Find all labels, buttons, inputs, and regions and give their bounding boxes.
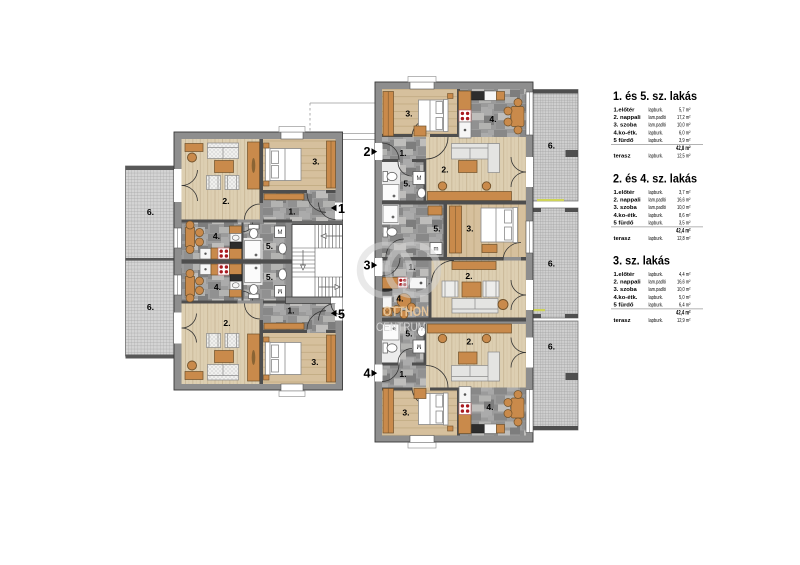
svg-text:5.: 5. [433, 224, 440, 234]
svg-text:4.: 4. [486, 402, 493, 412]
svg-text:12,5 m²: 12,5 m² [677, 154, 691, 160]
svg-text:terasz: terasz [614, 236, 631, 242]
svg-text:4.ko-étk.: 4.ko-étk. [614, 295, 638, 301]
svg-text:2. nappali: 2. nappali [614, 280, 642, 286]
svg-text:3,7 m²: 3,7 m² [679, 190, 691, 196]
svg-text:5 fürdő: 5 fürdő [614, 220, 634, 226]
svg-text:3.: 3. [312, 157, 319, 167]
svg-text:lapburk.: lapburk. [649, 302, 664, 308]
svg-text:12,8 m²: 12,8 m² [677, 236, 691, 242]
svg-text:3.: 3. [402, 408, 409, 418]
svg-text:12,9 m²: 12,9 m² [677, 318, 691, 324]
svg-text:42,4 m²: 42,4 m² [676, 227, 691, 234]
svg-text:5: 5 [338, 307, 345, 321]
svg-text:16,6 m²: 16,6 m² [677, 198, 691, 204]
svg-text:lapburk.: lapburk. [649, 220, 664, 226]
svg-text:2. nappali: 2. nappali [614, 198, 642, 204]
svg-text:CENTRUM: CENTRUM [376, 322, 426, 334]
svg-text:3.: 3. [405, 109, 412, 119]
svg-text:4,4 m²: 4,4 m² [679, 272, 691, 278]
svg-text:lam.padló: lam.padló [649, 198, 667, 204]
svg-text:2: 2 [364, 145, 371, 159]
svg-text:4.: 4. [489, 114, 496, 124]
svg-text:6.: 6. [147, 207, 154, 217]
svg-text:lapburk.: lapburk. [649, 272, 664, 278]
svg-text:5.: 5. [403, 179, 410, 189]
svg-text:42,8 m²: 42,8 m² [676, 145, 691, 152]
svg-text:2.: 2. [223, 318, 230, 328]
svg-text:lapburk.: lapburk. [649, 295, 664, 301]
svg-text:lam.padló: lam.padló [649, 115, 667, 121]
svg-text:6.: 6. [548, 141, 555, 151]
svg-text:1.: 1. [399, 369, 406, 379]
svg-text:lam.padló: lam.padló [649, 123, 667, 129]
svg-text:4.ko-étk.: 4.ko-étk. [614, 130, 638, 136]
svg-text:10,0 m²: 10,0 m² [677, 205, 691, 211]
svg-text:1.: 1. [399, 148, 406, 158]
svg-text:3.: 3. [311, 357, 318, 367]
svg-text:6,4 m²: 6,4 m² [679, 302, 691, 308]
svg-text:lam.padló: lam.padló [649, 287, 667, 293]
svg-text:5,7 m²: 5,7 m² [679, 108, 691, 114]
svg-text:5.: 5. [266, 272, 273, 282]
svg-text:2.: 2. [441, 165, 448, 175]
svg-text:lapburk.: lapburk. [649, 138, 664, 144]
svg-text:5 fürdő: 5 fürdő [614, 138, 634, 144]
svg-text:10,0 m²: 10,0 m² [677, 123, 691, 129]
svg-text:terasz: terasz [614, 154, 631, 160]
svg-text:1.: 1. [288, 207, 295, 217]
svg-text:6.: 6. [548, 259, 555, 269]
svg-text:lapburk.: lapburk. [649, 190, 664, 196]
svg-text:lam.padló: lam.padló [649, 280, 667, 286]
svg-text:M: M [278, 230, 283, 236]
svg-text:1.: 1. [287, 306, 294, 316]
svg-text:1.előtér: 1.előtér [614, 272, 636, 278]
svg-text:4: 4 [364, 367, 371, 381]
svg-text:lam.padló: lam.padló [649, 205, 667, 211]
svg-text:6,0 m²: 6,0 m² [679, 130, 691, 136]
svg-text:OTTHON: OTTHON [383, 304, 429, 319]
svg-text:10,0 m²: 10,0 m² [677, 287, 691, 293]
svg-text:4.ko-étk.: 4.ko-étk. [614, 213, 638, 219]
svg-text:3,5 m²: 3,5 m² [679, 220, 691, 226]
svg-text:5,0 m²: 5,0 m² [679, 295, 691, 301]
svg-text:2. és 4. sz. lakás: 2. és 4. sz. lakás [613, 174, 697, 186]
svg-text:1: 1 [338, 202, 345, 216]
svg-text:lapburk.: lapburk. [649, 318, 664, 324]
svg-text:2. nappali: 2. nappali [614, 115, 642, 121]
svg-text:lapburk.: lapburk. [649, 154, 664, 160]
svg-text:1.előtér: 1.előtér [614, 190, 636, 196]
svg-text:6.: 6. [147, 302, 154, 312]
svg-text:42,4 m²: 42,4 m² [676, 309, 691, 316]
svg-text:lapburk.: lapburk. [649, 236, 664, 242]
svg-text:1.előtér: 1.előtér [614, 108, 636, 114]
svg-text:5.: 5. [266, 241, 273, 251]
svg-text:5 fürdő: 5 fürdő [614, 302, 634, 308]
svg-text:3. szoba: 3. szoba [614, 123, 638, 129]
svg-text:lapburk.: lapburk. [649, 108, 664, 114]
svg-text:2.: 2. [466, 337, 473, 347]
svg-text:16,6 m²: 16,6 m² [677, 280, 691, 286]
svg-text:6.: 6. [548, 342, 555, 352]
svg-text:3. sz. lakás: 3. sz. lakás [613, 256, 670, 268]
svg-text:1. és 5. sz. lakás: 1. és 5. sz. lakás [613, 91, 697, 103]
svg-text:3. szoba: 3. szoba [614, 287, 638, 293]
svg-text:M: M [417, 176, 422, 182]
svg-text:lapburk.: lapburk. [649, 130, 664, 136]
svg-text:terasz: terasz [614, 318, 631, 324]
svg-text:2.: 2. [465, 271, 472, 281]
svg-text:lapburk.: lapburk. [649, 213, 664, 219]
svg-text:2.: 2. [222, 196, 229, 206]
svg-text:4.: 4. [214, 282, 221, 292]
svg-text:3,9 m²: 3,9 m² [679, 138, 691, 144]
svg-text:3.: 3. [466, 224, 473, 234]
svg-text:17,2 m²: 17,2 m² [677, 115, 691, 121]
svg-text:3. szoba: 3. szoba [614, 205, 638, 211]
svg-text:4.: 4. [213, 231, 220, 241]
svg-text:8,6 m²: 8,6 m² [679, 213, 691, 219]
